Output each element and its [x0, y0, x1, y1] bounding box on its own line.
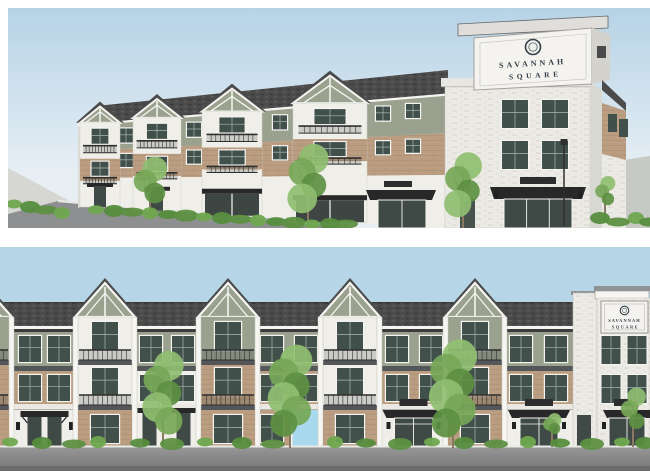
floor-band: [78, 405, 132, 410]
shrub: [120, 208, 144, 217]
wall-sconce-icon: [512, 422, 516, 429]
balcony-railing: [299, 126, 362, 133]
entry-awning: [508, 410, 570, 418]
sign-plaque: [520, 177, 556, 184]
elevation-view-panel: SAVANNAH SQUARE: [0, 247, 650, 471]
wall-sconce-icon: [562, 422, 566, 429]
balcony-railing: [83, 146, 117, 153]
tree-foliage: [287, 184, 317, 214]
bay-post: [502, 317, 507, 447]
shrub: [54, 207, 70, 219]
lamp-head: [561, 139, 568, 145]
balcony-railing: [207, 134, 258, 141]
shrub: [32, 437, 52, 449]
floor-band: [0, 405, 9, 410]
shrub: [454, 437, 474, 449]
floor-band: [323, 405, 377, 410]
bay-post: [9, 317, 14, 447]
wall-sconce-icon: [602, 422, 606, 429]
tower-side-face: [590, 84, 602, 228]
shrub: [2, 438, 18, 447]
wall-sconce-icon: [16, 422, 20, 430]
wall-sconce-icon: [578, 191, 582, 199]
balcony-railing: [137, 141, 178, 148]
sign-plaque: [400, 399, 428, 406]
entry-doors: [504, 199, 572, 228]
shrub: [356, 439, 376, 448]
shrub: [388, 438, 412, 450]
tree-foliage: [629, 413, 645, 429]
balcony-railing: [0, 395, 8, 405]
sign-medallion-icon: [526, 40, 541, 55]
bay-post: [196, 317, 201, 447]
pilaster: [571, 291, 599, 447]
rendering-collage: SAVANNAH SQUARE: [0, 0, 650, 471]
balcony-railing: [202, 350, 254, 360]
shrub: [232, 437, 252, 449]
tree-foliage: [155, 407, 182, 434]
entry-awning: [202, 189, 262, 194]
shrub: [90, 436, 106, 448]
shrub: [142, 207, 158, 219]
floor-band: [201, 360, 255, 365]
shrub: [174, 210, 198, 222]
balcony-railing: [324, 350, 376, 360]
floor-band: [78, 360, 132, 365]
tree-foliage: [144, 183, 165, 204]
shrub: [550, 439, 570, 448]
pavement-edge: [0, 466, 650, 471]
shrub: [484, 440, 508, 449]
floor-band: [0, 360, 9, 365]
balcony-railing: [207, 166, 258, 172]
shrub: [327, 436, 343, 448]
balcony-railing: [202, 395, 254, 405]
porch-canopy: [21, 411, 69, 417]
balcony-railing: [79, 395, 131, 405]
entry-awning: [490, 187, 586, 199]
shrub: [520, 436, 536, 448]
sign-medallion-icon: [620, 306, 629, 315]
sign-text-line1: SAVANNAH: [608, 318, 641, 323]
shrub: [606, 218, 630, 227]
tree-foliage: [602, 193, 614, 205]
floor-band: [323, 360, 377, 365]
bay-post: [132, 317, 137, 447]
sign-text-line2: SQUARE: [612, 325, 639, 330]
shrub: [160, 438, 184, 450]
sign-plaque: [384, 181, 412, 187]
entry-awning: [366, 190, 436, 200]
sign-side-vent: [597, 46, 606, 58]
wall-sconce-icon: [69, 422, 73, 430]
shrub: [88, 205, 104, 214]
shrub: [424, 438, 440, 447]
entry-door: [94, 186, 106, 207]
floor-band: [201, 405, 255, 410]
bay-post: [73, 317, 78, 447]
balcony-railing: [83, 178, 117, 184]
wall-sconce-icon: [494, 191, 498, 199]
shrub: [197, 438, 213, 447]
wall-sconce-icon: [387, 422, 391, 429]
shrub: [261, 440, 285, 449]
bay-post: [255, 317, 260, 447]
shrub: [196, 212, 212, 221]
perspective-view-panel: SAVANNAH SQUARE: [8, 8, 650, 228]
bay-post: [377, 317, 382, 447]
tree-foliage: [432, 408, 461, 437]
east-window: [619, 119, 628, 137]
balcony-railing: [324, 395, 376, 405]
tree-foliage: [444, 190, 471, 217]
balcony-railing: [79, 350, 131, 360]
shrub: [250, 214, 266, 226]
east-window: [608, 114, 617, 132]
sign-plaque: [525, 399, 553, 406]
shrub: [130, 439, 150, 448]
shrub: [228, 215, 252, 224]
bay-post: [318, 317, 323, 447]
tower-cap-slab: [594, 286, 650, 291]
shrub: [580, 438, 604, 450]
balcony-railing: [0, 350, 8, 360]
tree-foliage: [270, 410, 297, 437]
shrub: [614, 438, 630, 447]
shrub: [62, 440, 86, 449]
tree-foliage: [549, 423, 560, 434]
